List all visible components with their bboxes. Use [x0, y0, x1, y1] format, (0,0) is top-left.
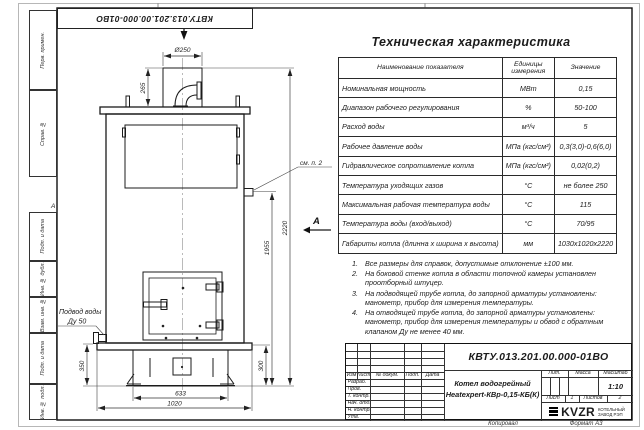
tb-col-podp: Подп.	[404, 372, 421, 379]
tb-row-utv: Утв.	[348, 414, 371, 421]
dimension-265: 265	[140, 68, 163, 106]
top-doc-number: КВТУ.013.201.00.000-01ВО	[96, 14, 213, 24]
spec-header-units: Единицы измерения	[502, 58, 554, 79]
margin-stamp-inv-podl: Инв. № подл.	[29, 384, 57, 420]
spec-row: Температура уходящих газов°Сне более 250	[339, 175, 617, 194]
tb-listov-label: Листов	[579, 395, 607, 402]
callout-see-note-2: см. п. 2	[254, 160, 332, 190]
tb-lit-label: Лит.	[541, 370, 568, 377]
kopiroval-label: Копировал	[468, 421, 538, 427]
tb-col-list: Лист	[357, 372, 370, 379]
tb-col-data: Дата	[421, 372, 444, 379]
svg-text:А: А	[312, 216, 320, 227]
tb-row-nachotd: Нач. отд.	[348, 400, 371, 407]
margin-stamp-podp-data-1: Подп. и дата	[29, 212, 57, 261]
dimension-1955: 1955	[253, 192, 276, 386]
tb-masshtab-label: Масштаб	[598, 370, 633, 377]
callout-water-inlet: Подвод воды Ду 50	[58, 308, 104, 335]
tb-col-docum: № докум.	[370, 372, 404, 379]
divider	[346, 358, 444, 359]
company-logo: KVZR КОТЕЛЬНЫЙ ЗАВОД РЭП	[541, 402, 633, 421]
spec-row: Максимальная рабочая температура воды°С1…	[339, 195, 617, 214]
spec-header-row: Наименование показателя Единицы измерени…	[339, 58, 617, 79]
view-arrow-a: А	[303, 216, 331, 233]
spec-table: Наименование показателя Единицы измерени…	[338, 57, 617, 254]
tb-product-name: Котел водогрейный Heatexpert-КВр-0,15-КБ…	[444, 370, 541, 421]
logo-word: KVZR	[561, 405, 595, 419]
spec-row: Габариты котла (длинна x ширина x высота…	[339, 234, 617, 253]
divider	[550, 377, 551, 395]
spec-row: Расход водым³/ч5	[339, 117, 617, 136]
boiler-outline	[94, 68, 254, 386]
format-label: Формат А3	[556, 421, 616, 427]
top-doc-number-stamp: КВТУ.013.201.00.000-01ВО	[57, 8, 253, 29]
spec-header-name: Наименование показателя	[339, 58, 503, 79]
note-item: 2.На боковой стенке котла в области топо…	[352, 269, 620, 287]
spec-row: Диапазон рабочего регулирования%50-100	[339, 98, 617, 117]
tb-massa-label: Масса	[568, 370, 598, 377]
logo-bars-icon	[549, 407, 558, 417]
divider	[346, 365, 444, 366]
title-block: Изм Лист № докум. Подп. Дата Разраб. Про…	[345, 343, 632, 420]
spec-row: Номинальная мощностьМВт0,15	[339, 79, 617, 98]
note-item: 3.На подводящей трубе котла, до запорной…	[352, 289, 620, 307]
tb-scale-value: 1:10	[598, 377, 633, 395]
svg-text:Ду 50: Ду 50	[67, 319, 86, 326]
margin-stamp-vzam-inv: Взам. инв. №	[29, 297, 57, 333]
svg-text:Подвод воды: Подвод воды	[59, 308, 102, 316]
spec-row: Рабочее давление водыМПа (кгс/см²)0,3(3,…	[339, 137, 617, 156]
drawing-sheet: .ln{stroke:#1b1b1b;stroke-width:1;fill:n…	[0, 0, 644, 430]
spec-row: Гидравлическое сопротивление котлаМПа (к…	[339, 156, 617, 175]
divider	[421, 344, 422, 421]
divider	[346, 351, 444, 352]
margin-stamp-podp-data-2: Подп. и дата	[29, 333, 57, 384]
margin-stamp-sprav-no: Справ. №	[29, 90, 57, 177]
tb-doc-number: КВТУ.013.201.00.000-01ВО	[444, 344, 633, 370]
tb-col-izm: Изм	[346, 372, 357, 379]
margin-stamp-perv-primen: Перв. примен.	[29, 10, 57, 90]
tb-product-name-line1: Котел водогрейный	[444, 378, 541, 389]
divider	[404, 344, 405, 421]
company-name: КОТЕЛЬНЫЙ ЗАВОД РЭП	[598, 407, 625, 417]
dimension-2220: 2220	[202, 68, 294, 386]
svg-text:633: 633	[175, 391, 186, 398]
note-item: 4.На отводящей трубе котла, до запорной …	[352, 308, 620, 336]
tb-list-label: Лист	[541, 395, 565, 402]
svg-text:1955: 1955	[264, 240, 271, 255]
svg-text:265: 265	[140, 82, 147, 94]
svg-text:см. п. 2: см. п. 2	[300, 160, 323, 167]
divider	[559, 377, 560, 395]
svg-text:Ø250: Ø250	[174, 47, 191, 54]
svg-text:2220: 2220	[282, 220, 289, 236]
svg-text:350: 350	[79, 360, 86, 371]
dimension-633: 633	[133, 387, 228, 401]
spec-table-title: Техническая характеристика	[338, 35, 604, 49]
dimension-1020: 1020	[97, 351, 252, 411]
tb-row-razrab: Разраб.	[348, 379, 371, 386]
tb-row-prov: Пров.	[348, 386, 371, 393]
tb-listov-value: 2	[607, 395, 633, 402]
notes-list: 1.Все размеры для справок, допустимые от…	[352, 259, 620, 337]
margin-stamp-inv-dubl: Инв. № дубл.	[29, 261, 57, 297]
note-item: 1.Все размеры для справок, допустимые от…	[352, 259, 620, 268]
tb-product-name-line2: Heatexpert-КВр-0,15-КБ(К)	[444, 389, 541, 400]
tb-row-nkontr: Н. контр.	[348, 407, 371, 414]
tb-list-value: 1	[565, 395, 579, 402]
spec-header-value: Значение	[554, 58, 616, 79]
tb-row-tkontr: Т. контр.	[348, 393, 371, 400]
svg-text:300: 300	[258, 360, 265, 371]
spec-row: Температура воды (вход/выход)°С70/95	[339, 214, 617, 233]
dimension-300: 300	[252, 345, 270, 385]
svg-text:1020: 1020	[167, 401, 182, 408]
zone-label: А	[50, 203, 55, 210]
